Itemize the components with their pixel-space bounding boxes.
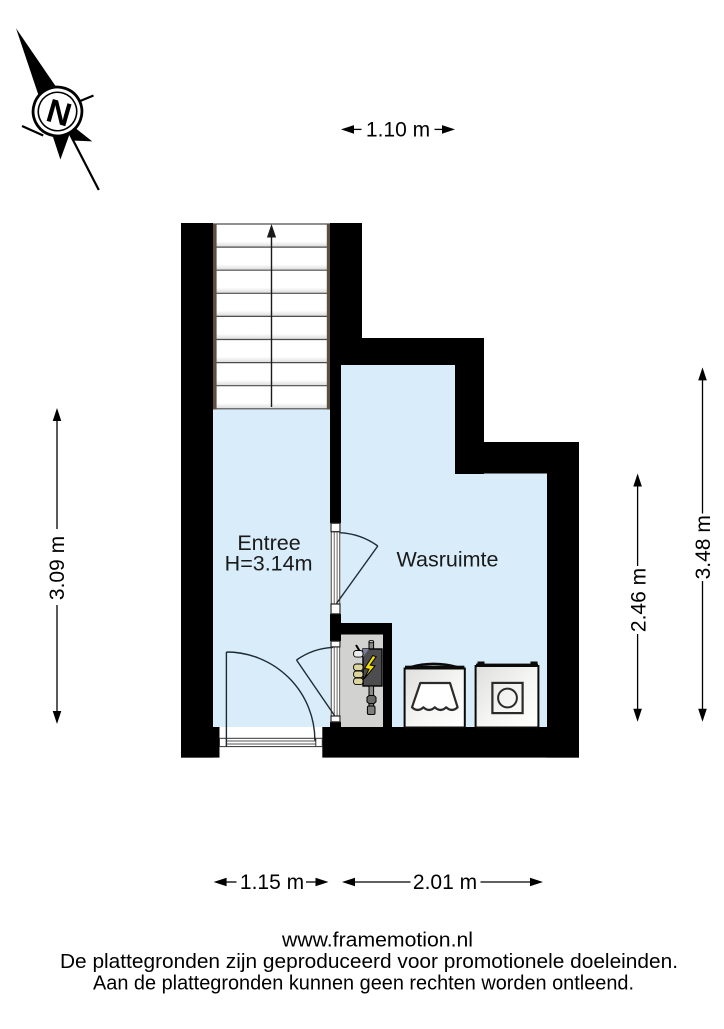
svg-text:1.10 m: 1.10 m [366, 118, 430, 141]
svg-text:De plattegronden zijn geproduc: De plattegronden zijn geproduceerd voor … [60, 950, 678, 973]
svg-text:3.09 m: 3.09 m [46, 536, 69, 600]
svg-text:3.48 m: 3.48 m [692, 515, 715, 579]
svg-text:2.46 m: 2.46 m [627, 568, 650, 632]
svg-text:www.framemotion.nl: www.framemotion.nl [281, 929, 473, 952]
svg-text:H=3.14m: H=3.14m [225, 552, 313, 576]
svg-text:1.15 m: 1.15 m [240, 871, 304, 894]
svg-text:2.01 m: 2.01 m [413, 871, 477, 894]
svg-text:Aan de plattegronden kunnen ge: Aan de plattegronden kunnen geen rechten… [93, 971, 634, 994]
svg-text:Wasruimte: Wasruimte [397, 548, 499, 572]
